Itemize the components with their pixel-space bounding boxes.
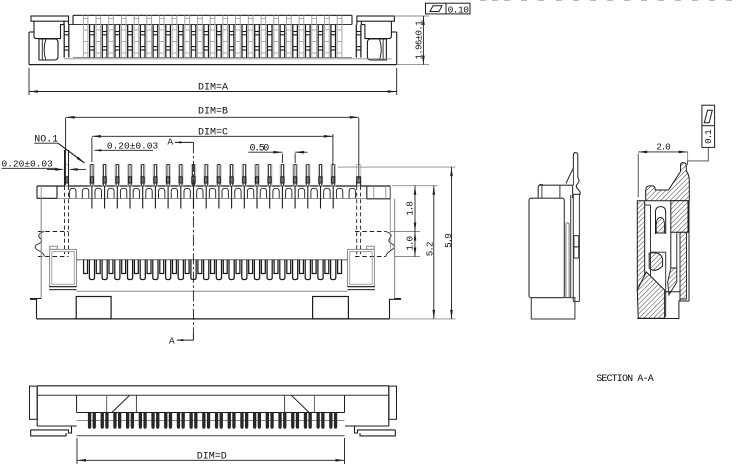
svg-text:1.8: 1.8 [405,202,416,216]
svg-text:DIM=B: DIM=B [198,107,228,118]
svg-text:DIM=D: DIM=D [197,451,227,462]
svg-text:0.1: 0.1 [704,130,714,144]
svg-text:1.0: 1.0 [405,237,416,251]
svg-text:5.2: 5.2 [424,242,435,256]
svg-text:5.9: 5.9 [443,234,454,248]
svg-text:A: A [169,336,175,347]
svg-text:DIM=C: DIM=C [198,127,228,138]
svg-text:2.0: 2.0 [656,141,670,152]
svg-text:SECTION A-A: SECTION A-A [596,374,654,385]
svg-text:0.10: 0.10 [448,5,470,16]
svg-text:A: A [167,137,173,148]
svg-text:1.96±0.1: 1.96±0.1 [414,21,424,60]
svg-text:NO.1: NO.1 [34,135,58,146]
svg-text:0.50: 0.50 [250,143,270,154]
svg-text:DIM=A: DIM=A [198,83,228,94]
